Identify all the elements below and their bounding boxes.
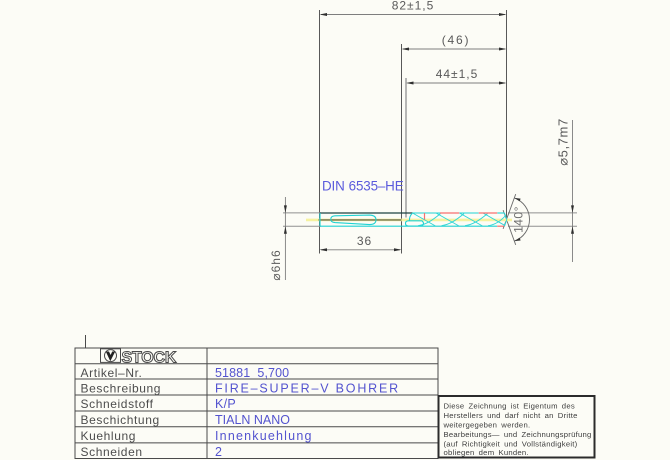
svg-text:Innenkuehlung: Innenkuehlung (215, 429, 313, 443)
svg-text:TIALN NANO: TIALN NANO (215, 413, 290, 427)
svg-text:obliegen dem Kunden.: obliegen dem Kunden. (444, 448, 529, 457)
svg-text:STOCK: STOCK (122, 350, 177, 367)
svg-text:(auf Richtigkeit und Vollständ: (auf Richtigkeit und Vollständigkeit) (444, 439, 578, 448)
svg-text:(46): (46) (442, 33, 471, 47)
svg-text:Herstellers und darf nicht an: Herstellers und darf nicht an Dritte (444, 411, 578, 420)
svg-text:Beschichtung: Beschichtung (81, 413, 160, 427)
svg-text:Diese Zeichnung ist Eigentum d: Diese Zeichnung ist Eigentum des (444, 402, 575, 411)
svg-text:FIRE–SUPER–V BOHRER: FIRE–SUPER–V BOHRER (215, 381, 400, 395)
svg-text:weitergegeben werden.: weitergegeben werden. (443, 421, 531, 430)
svg-text:36: 36 (357, 234, 372, 248)
svg-text:⌀6h6: ⌀6h6 (269, 249, 283, 280)
svg-text:Schneidstoff: Schneidstoff (81, 397, 154, 411)
svg-text:K/P: K/P (215, 397, 236, 411)
svg-text:DIN 6535–HE: DIN 6535–HE (322, 179, 404, 194)
svg-text:51881 5,700: 51881 5,700 (215, 366, 289, 380)
svg-text:Kuehlung: Kuehlung (81, 429, 137, 443)
svg-text:Beschreibung: Beschreibung (81, 381, 162, 395)
svg-text:2: 2 (215, 445, 222, 459)
svg-text:Schneiden: Schneiden (81, 445, 143, 459)
svg-text:⌀5,7m7: ⌀5,7m7 (556, 118, 571, 166)
svg-text:140°: 140° (512, 206, 526, 233)
svg-text:Artikel–Nr.: Artikel–Nr. (81, 366, 143, 380)
svg-text:44±1,5: 44±1,5 (436, 67, 479, 81)
svg-text:82±1,5: 82±1,5 (392, 0, 435, 13)
svg-text:Bearbeitungs— und Zeichnungspr: Bearbeitungs— und Zeichnungsprüfung (444, 430, 592, 439)
